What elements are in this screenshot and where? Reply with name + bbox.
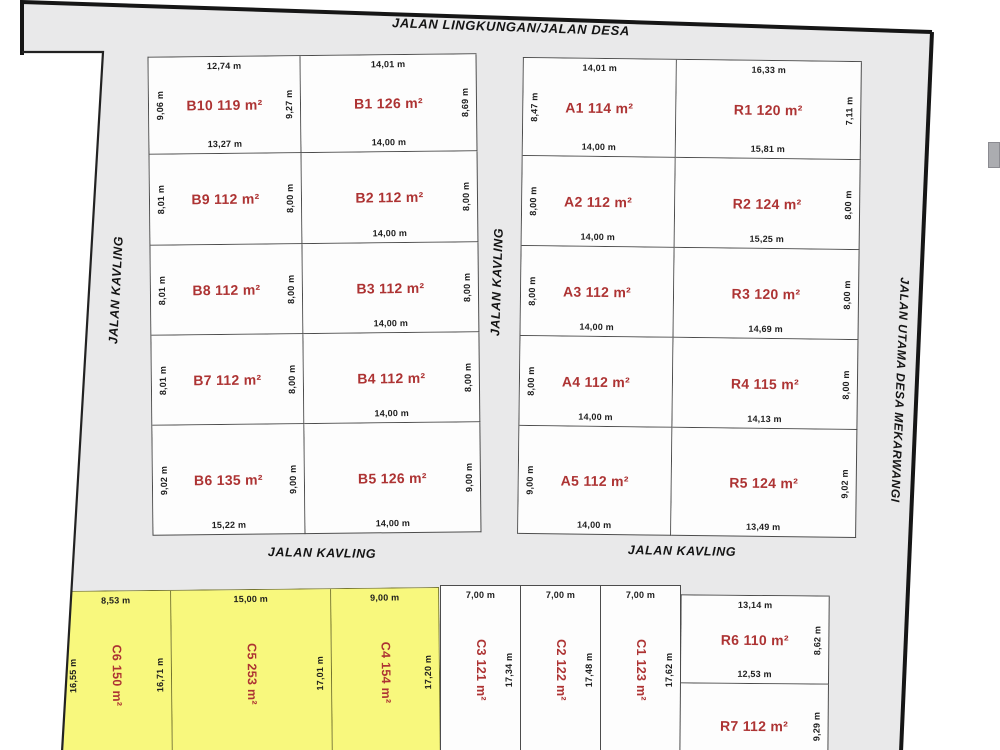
dim-left: 8,47 m <box>529 84 540 130</box>
dim-right: 17,01 m <box>315 650 325 696</box>
block-c: C3 121 m²7,00 m17,34 mC2 122 m²7,00 m17,… <box>440 585 681 750</box>
dim-right: 8,00 m <box>842 271 853 317</box>
plot-area-label: B9 112 m² <box>150 153 302 245</box>
dim-top: 8,53 m <box>61 595 170 606</box>
plot-C4: C4 154 m²9,00 m17,20 m <box>331 588 441 750</box>
plot-area-label: B6 135 m² <box>152 424 304 535</box>
plot-B2: B2 112 m²8,00 m14,00 m <box>302 151 479 244</box>
dim-top: 14,01 m <box>301 58 476 70</box>
dim-bottom: 15,25 m <box>675 233 859 245</box>
dim-bottom: 13,49 m <box>671 521 855 533</box>
dim-bottom: 15,81 m <box>676 143 860 155</box>
dim-right: 9,27 m <box>284 81 294 127</box>
dim-top: 7,00 m <box>601 590 680 600</box>
dim-top: 13,14 m <box>682 599 829 610</box>
dim-bottom: 14,00 m <box>303 317 478 329</box>
dim-bottom: 15,22 m <box>153 519 304 531</box>
plot-B3: B3 112 m²8,00 m14,00 m <box>302 242 479 334</box>
dim-bottom: 14,00 m <box>301 136 476 148</box>
plot-B5: B5 126 m²9,00 m14,00 m <box>304 422 481 534</box>
dim-bottom: 14,00 m <box>302 227 477 239</box>
plot-A2: A2 112 m²8,00 m14,00 m <box>522 156 676 248</box>
plot-A3: A3 112 m²8,00 m14,00 m <box>521 246 675 338</box>
plot-A5: A5 112 m²9,00 m14,00 m <box>518 426 672 536</box>
dim-bottom: 14,13 m <box>672 413 856 425</box>
dim-left: 9,00 m <box>524 457 535 503</box>
plot-area-label: B5 126 m² <box>304 422 480 533</box>
dim-right: 16,71 m <box>155 651 165 697</box>
dim-top: 7,00 m <box>521 590 600 600</box>
dim-right: 8,00 m <box>843 181 854 227</box>
block-b: B10 119 m²12,74 m9,06 m9,27 m13,27 mB9 1… <box>148 53 482 535</box>
plot-R5: R5 124 m²9,02 m13,49 m <box>671 428 857 538</box>
dim-left: 8,01 m <box>156 177 166 223</box>
plot-C3: C3 121 m²7,00 m17,34 m <box>441 586 521 750</box>
plot-B7: B7 112 m²8,01 m8,00 m <box>151 334 304 426</box>
plot-C5: C5 253 m²15,00 m17,01 m <box>171 589 333 750</box>
dim-right: 8,00 m <box>286 266 296 312</box>
dim-bottom: 12,53 m <box>681 668 828 679</box>
dim-right: 9,00 m <box>288 456 298 502</box>
plot-area-label: C5 253 m² <box>171 589 332 750</box>
dim-bottom: 14,69 m <box>674 323 858 335</box>
dim-right: 17,48 m <box>584 647 594 693</box>
plot-B4: B4 112 m²8,00 m14,00 m <box>303 332 480 424</box>
plot-B10: B10 119 m²12,74 m9,06 m9,27 m13,27 m <box>149 56 302 155</box>
dim-right: 8,00 m <box>463 354 473 400</box>
dim-bottom: 14,00 m <box>523 141 675 153</box>
dim-left: 8,01 m <box>157 267 167 313</box>
dim-left: 8,00 m <box>526 358 537 404</box>
dim-top: 9,00 m <box>331 592 438 603</box>
plot-area-label: B8 112 m² <box>150 244 302 335</box>
dim-right: 9,29 m <box>811 703 821 749</box>
plot-C2: C2 122 m²7,00 m17,48 m <box>521 586 601 750</box>
dim-right: 8,00 m <box>285 175 295 221</box>
plot-R3: R3 120 m²8,00 m14,69 m <box>674 248 860 340</box>
dim-bottom: 14,00 m <box>521 321 673 333</box>
dim-right: 8,00 m <box>462 264 472 310</box>
dim-left: 9,02 m <box>159 457 169 503</box>
dim-bottom: 14,00 m <box>305 517 480 529</box>
dim-left: 8,00 m <box>527 268 538 314</box>
dim-right: 8,00 m <box>841 361 852 407</box>
plot-B8: B8 112 m²8,01 m8,00 m <box>150 244 303 336</box>
dim-bottom: 14,00 m <box>304 407 479 419</box>
road-label-bottom-right: JALAN KAVLING <box>612 543 752 559</box>
dim-left: 8,00 m <box>528 178 539 224</box>
dim-right: 8,69 m <box>460 79 470 125</box>
block-c-highlighted: C6 150 m²8,53 m16,55 m16,71 mC5 253 m²15… <box>61 587 441 750</box>
plot-R4: R4 115 m²8,00 m14,13 m <box>672 338 858 430</box>
dim-top: 14,01 m <box>524 62 676 74</box>
dim-right: 8,00 m <box>461 173 471 219</box>
plot-B6: B6 135 m²9,02 m9,00 m15,22 m <box>152 424 305 536</box>
dim-top: 12,74 m <box>149 60 300 72</box>
dim-left: 9,06 m <box>155 83 165 129</box>
plot-R7: R7 112 m²9,29 m <box>680 683 829 750</box>
dim-right: 17,20 m <box>423 649 433 695</box>
plot-C1: C1 123 m²7,00 m17,62 m <box>601 586 681 750</box>
dim-left: 16,55 m <box>68 652 78 698</box>
plot-C6: C6 150 m²8,53 m16,55 m16,71 m <box>61 591 173 750</box>
dim-right: 17,62 m <box>664 647 674 693</box>
dim-right: 7,11 m <box>844 87 855 133</box>
plot-B1: B1 126 m²14,01 m8,69 m14,00 m <box>301 54 478 153</box>
dim-right: 9,02 m <box>839 460 850 506</box>
dim-right: 8,62 m <box>812 617 822 663</box>
plot-A4: A4 112 m²8,00 m14,00 m <box>519 336 673 428</box>
site-plan: B10 119 m²12,74 m9,06 m9,27 m13,27 mB9 1… <box>0 0 1000 750</box>
dim-bottom: 14,00 m <box>522 231 674 243</box>
plot-R6: R6 110 m²13,14 m8,62 m12,53 m <box>681 595 830 684</box>
dim-top: 7,00 m <box>441 590 520 600</box>
plot-R1: R1 120 m²16,33 m7,11 m15,81 m <box>676 60 862 160</box>
dim-bottom: 13,27 m <box>149 138 300 150</box>
plot-R2: R2 124 m²8,00 m15,25 m <box>675 158 861 250</box>
plot-area-label: R7 112 m² <box>680 683 828 750</box>
dim-top: 16,33 m <box>677 64 861 76</box>
dim-right: 9,00 m <box>464 454 474 500</box>
edge-marker-box <box>988 142 1000 168</box>
road-label-bottom-left: JALAN KAVLING <box>252 545 392 561</box>
dim-bottom: 14,00 m <box>518 519 670 531</box>
dim-bottom: 14,00 m <box>519 411 671 423</box>
dim-right: 17,34 m <box>504 647 514 693</box>
dim-right: 8,00 m <box>287 356 297 402</box>
plot-B9: B9 112 m²8,01 m8,00 m <box>150 153 303 246</box>
dim-left: 8,01 m <box>158 357 168 403</box>
block-r-bottom: R6 110 m²13,14 m8,62 m12,53 mR7 112 m²9,… <box>679 594 830 750</box>
plot-area-label: B7 112 m² <box>151 334 303 425</box>
block-a-r: A1 114 m²14,01 m8,47 m14,00 mA2 112 m²8,… <box>517 57 862 538</box>
plot-A1: A1 114 m²14,01 m8,47 m14,00 m <box>523 58 677 158</box>
dim-top: 15,00 m <box>171 593 330 605</box>
